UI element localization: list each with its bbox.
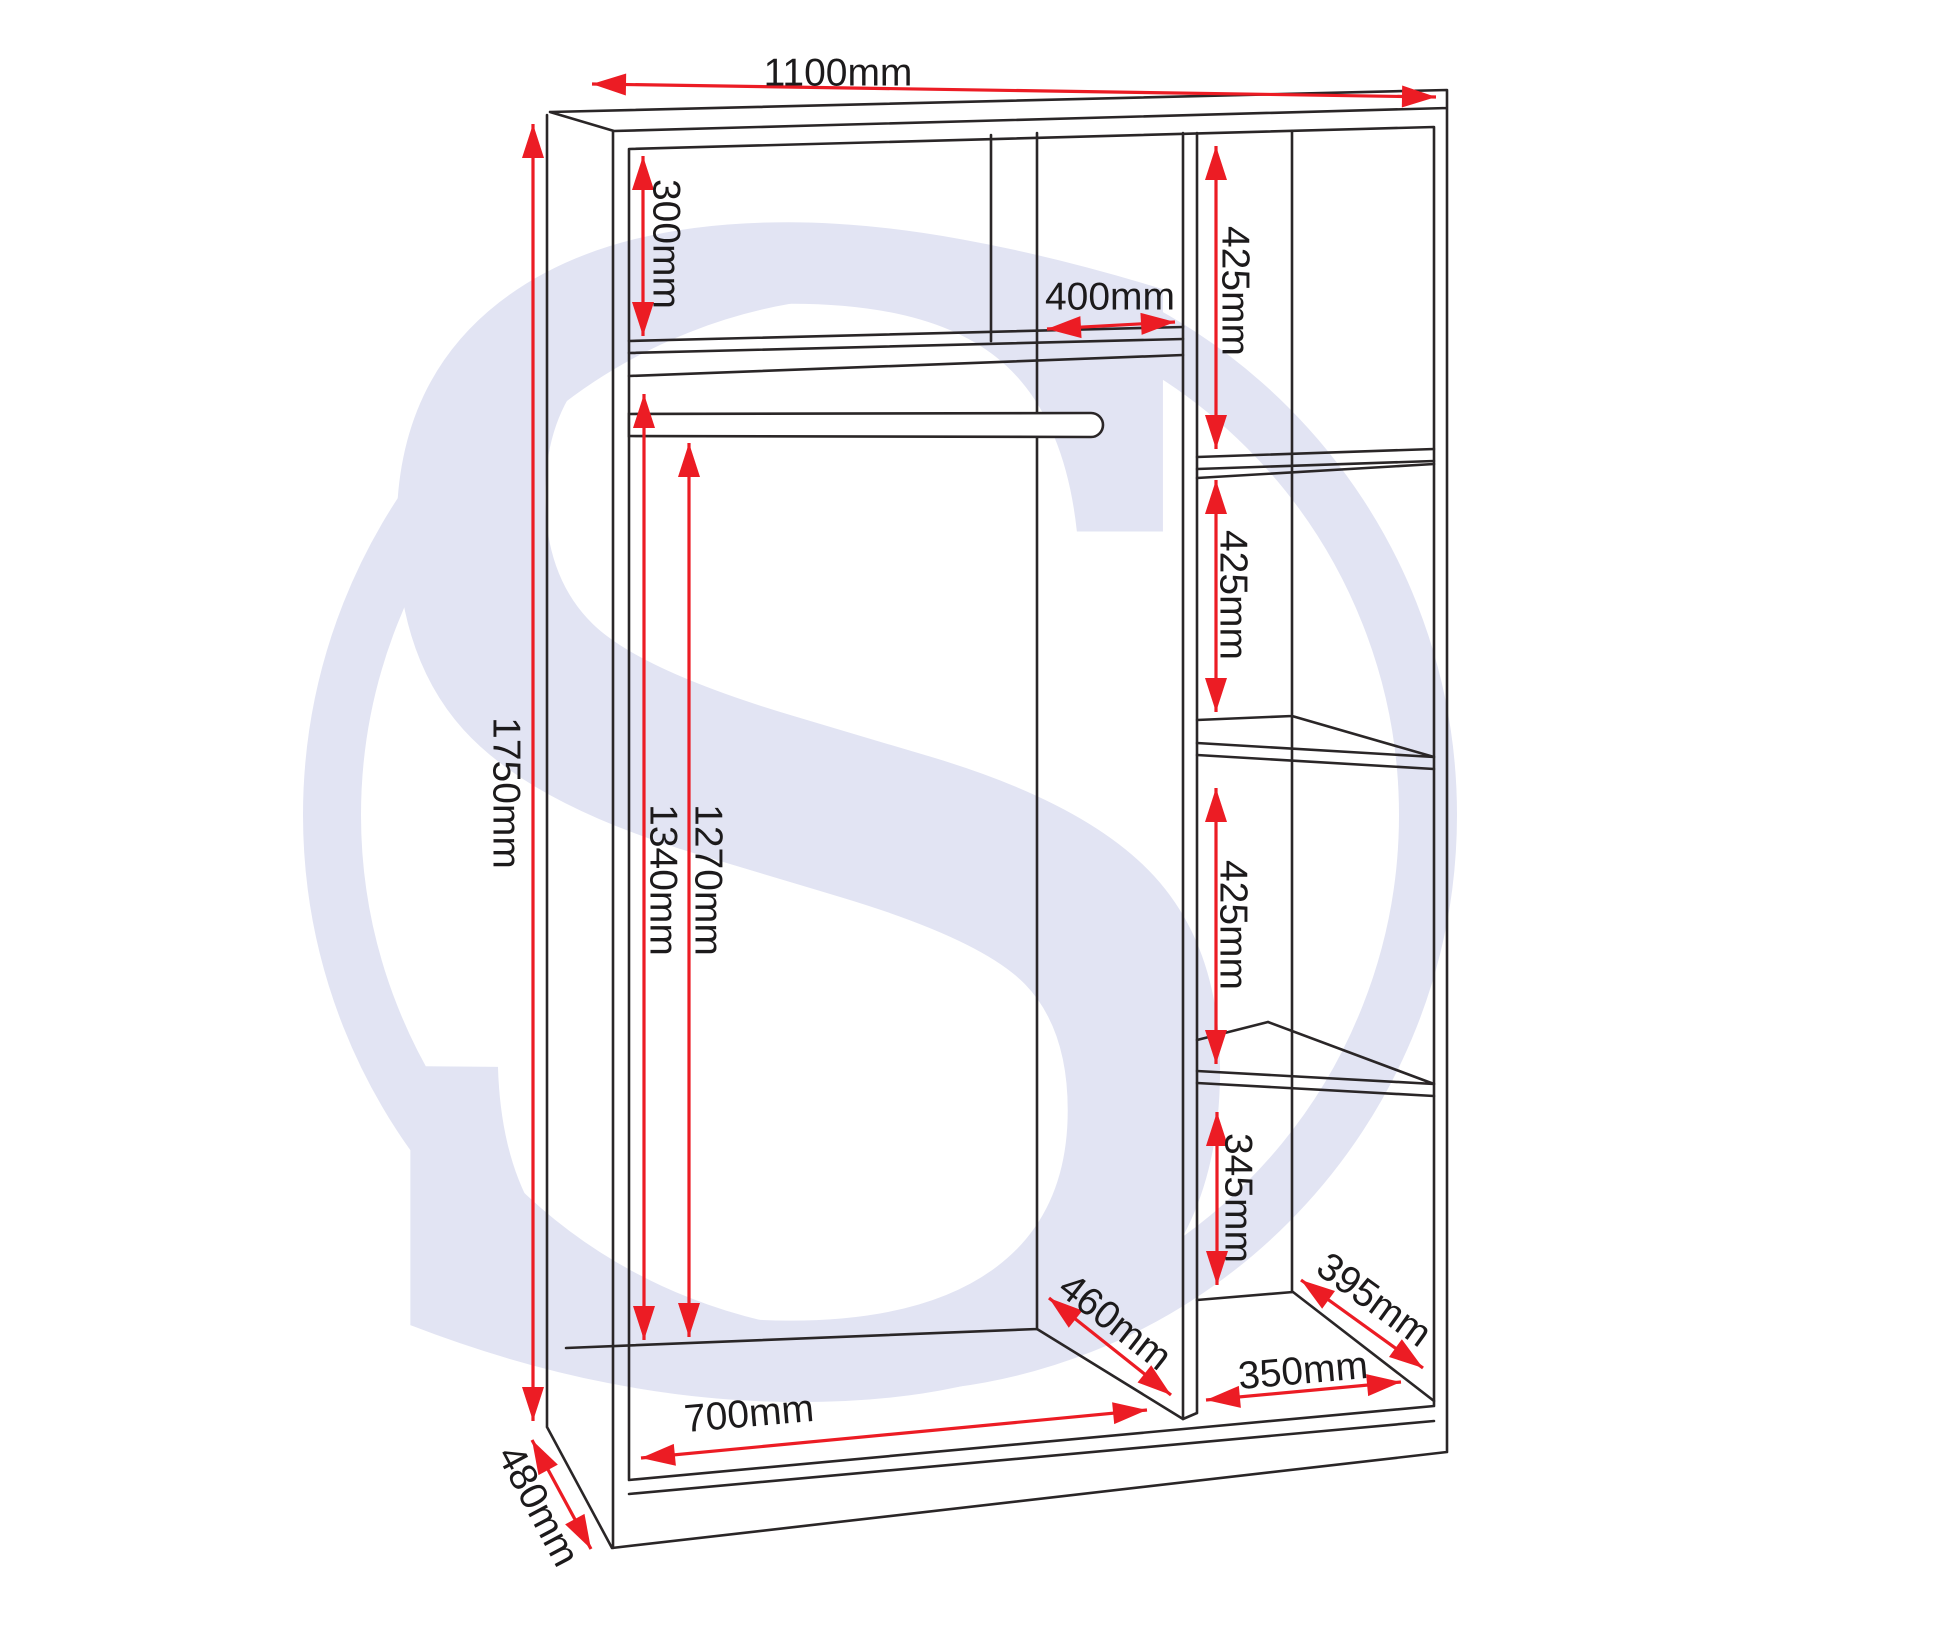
dim-label-cubby-4: 345mm (1217, 1133, 1260, 1263)
dim-label-cubby-1: 425mm (1214, 226, 1257, 356)
dim-label-top-shelf-drop: 300mm (645, 179, 688, 309)
dim-label-shelf-to-floor: 1340mm (642, 804, 685, 956)
hanging-rail (629, 413, 1103, 437)
dim-label-cubby-3: 425mm (1212, 860, 1255, 990)
wardrobe-dimension-diagram: S 1100mm 175 (0, 0, 1946, 1625)
dim-label-top-shelf-section-width: 400mm (1045, 276, 1175, 319)
watermark-s-letter: S (266, 0, 1335, 1625)
dim-label-overall-height: 1750mm (485, 717, 528, 869)
dim-label-rail-to-floor: 1270mm (687, 804, 730, 956)
dim-label-cubby-2: 425mm (1212, 530, 1255, 660)
diagram-canvas: S 1100mm 175 (0, 0, 1946, 1625)
dim-label-top-width: 1100mm (764, 52, 913, 95)
